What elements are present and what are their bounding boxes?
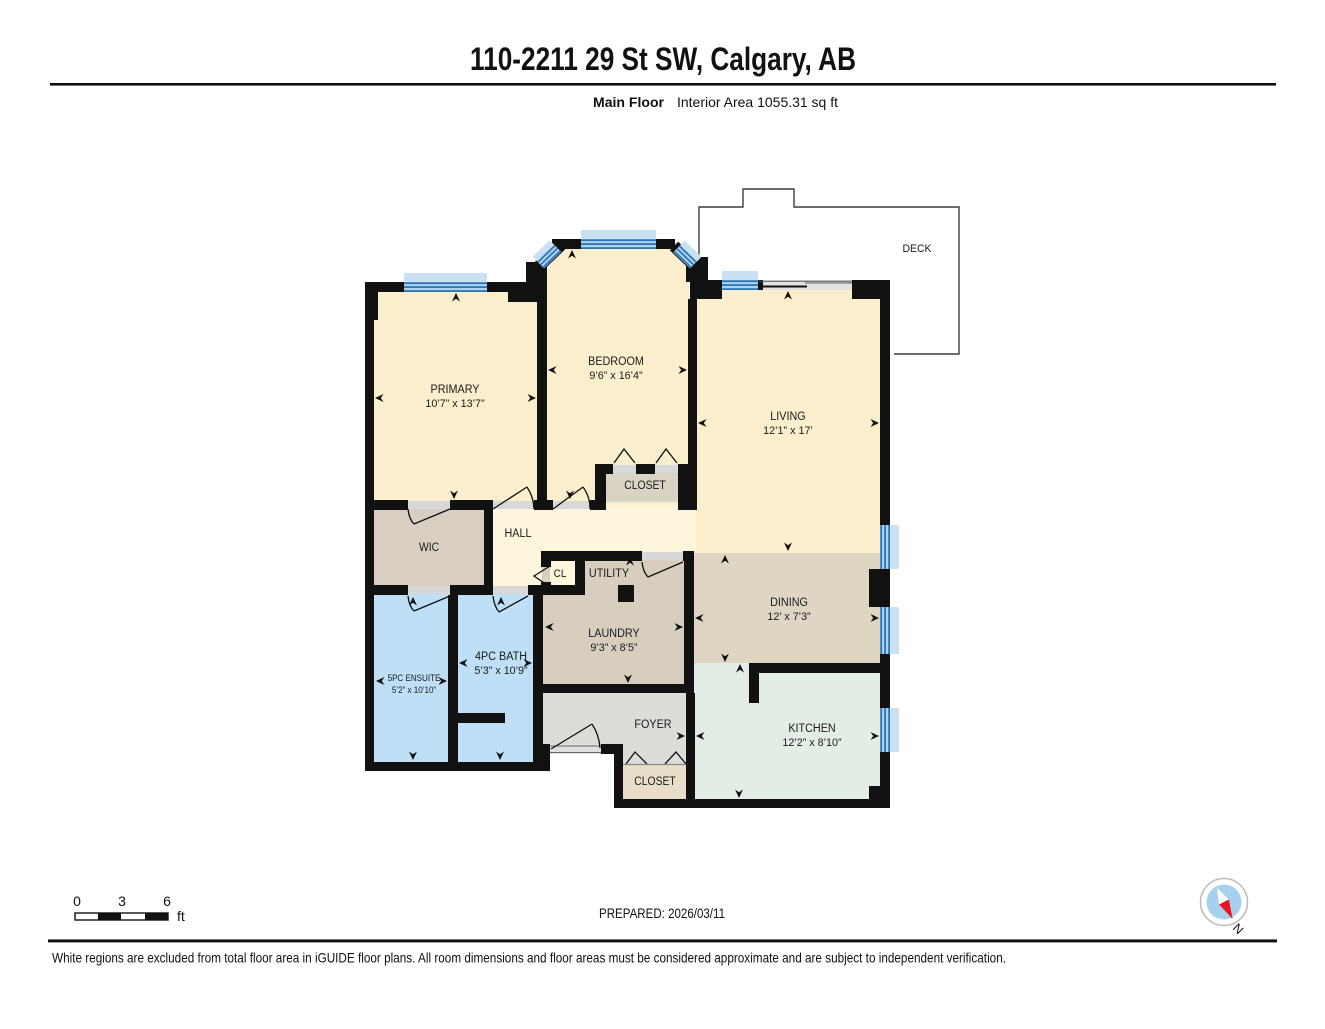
svg-text:5PC ENSUITE: 5PC ENSUITE bbox=[388, 672, 441, 683]
svg-text:DECK: DECK bbox=[902, 243, 932, 255]
svg-text:KITCHEN: KITCHEN bbox=[788, 723, 835, 736]
svg-text:WIC: WIC bbox=[419, 542, 439, 555]
svg-text:UTILITY: UTILITY bbox=[589, 568, 630, 581]
svg-text:PREPARED: 2026/03/11: PREPARED: 2026/03/11 bbox=[599, 905, 725, 921]
svg-text:PRIMARY: PRIMARY bbox=[431, 384, 480, 397]
svg-text:110-2211 29 St SW, Calgary, AB: 110-2211 29 St SW, Calgary, AB bbox=[470, 41, 856, 77]
svg-text:5’3” x 10’9”: 5’3” x 10’9” bbox=[474, 665, 528, 677]
svg-text:FOYER: FOYER bbox=[634, 719, 671, 732]
svg-text:Main Floor: Main Floor bbox=[593, 94, 665, 110]
svg-text:12’2” x 8’10”: 12’2” x 8’10” bbox=[782, 737, 842, 749]
svg-text:ft: ft bbox=[177, 908, 185, 924]
svg-text:9’3” x 8’5”: 9’3” x 8’5” bbox=[590, 642, 638, 654]
svg-text:BEDROOM: BEDROOM bbox=[588, 356, 644, 369]
svg-text:5’2” x 10’10”: 5’2” x 10’10” bbox=[392, 684, 436, 695]
svg-text:CL: CL bbox=[554, 569, 567, 581]
svg-text:9’6” x 16’4”: 9’6” x 16’4” bbox=[589, 370, 643, 382]
svg-text:White regions are excluded fro: White regions are excluded from total fl… bbox=[52, 950, 1006, 966]
svg-text:4PC BATH: 4PC BATH bbox=[475, 651, 527, 664]
svg-text:DINING: DINING bbox=[770, 597, 808, 610]
svg-text:Interior Area 1055.31 sq ft: Interior Area 1055.31 sq ft bbox=[677, 94, 838, 110]
svg-text:12’1” x 17’: 12’1” x 17’ bbox=[763, 425, 813, 437]
svg-text:HALL: HALL bbox=[504, 528, 531, 541]
svg-text:LAUNDRY: LAUNDRY bbox=[588, 628, 640, 641]
svg-text:0: 0 bbox=[73, 893, 81, 909]
svg-text:10’7” x 13’7”: 10’7” x 13’7” bbox=[425, 398, 485, 410]
svg-text:LIVING: LIVING bbox=[770, 411, 806, 424]
svg-text:12’ x 7’3”: 12’ x 7’3” bbox=[767, 611, 811, 623]
svg-text:6: 6 bbox=[163, 893, 171, 909]
svg-text:CLOSET: CLOSET bbox=[624, 480, 666, 493]
svg-text:3: 3 bbox=[118, 893, 126, 909]
svg-text:CLOSET: CLOSET bbox=[634, 776, 676, 789]
